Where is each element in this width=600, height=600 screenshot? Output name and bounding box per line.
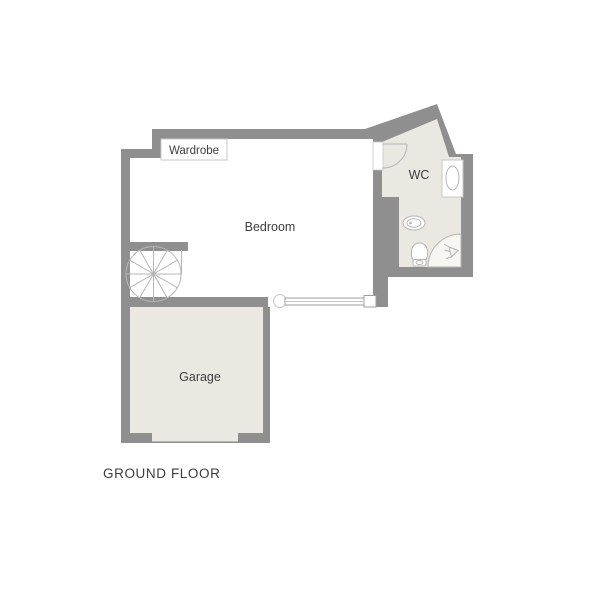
garage-label: Garage bbox=[179, 370, 221, 384]
wc-door-opening bbox=[373, 142, 383, 170]
floor-plan-drawing: Wardrobe bbox=[0, 0, 600, 600]
garage-door-opening bbox=[152, 433, 238, 441]
wardrobe-unit: Wardrobe bbox=[161, 139, 227, 160]
bedroom-label: Bedroom bbox=[245, 220, 296, 234]
sliding-door-post bbox=[364, 296, 376, 308]
floor-title: GROUND FLOOR bbox=[103, 466, 220, 481]
wc-label: WC bbox=[409, 168, 430, 182]
spiral-staircase-icon bbox=[126, 247, 182, 302]
bedroom-floor bbox=[130, 139, 373, 297]
basin-tap-dot bbox=[409, 222, 412, 225]
garage-door bbox=[152, 433, 238, 442]
floor-plan: Wardrobe bbox=[0, 0, 600, 600]
washbasin-icon bbox=[446, 166, 459, 190]
wardrobe-label: Wardrobe bbox=[169, 145, 219, 157]
basin-oval-icon bbox=[403, 216, 425, 230]
